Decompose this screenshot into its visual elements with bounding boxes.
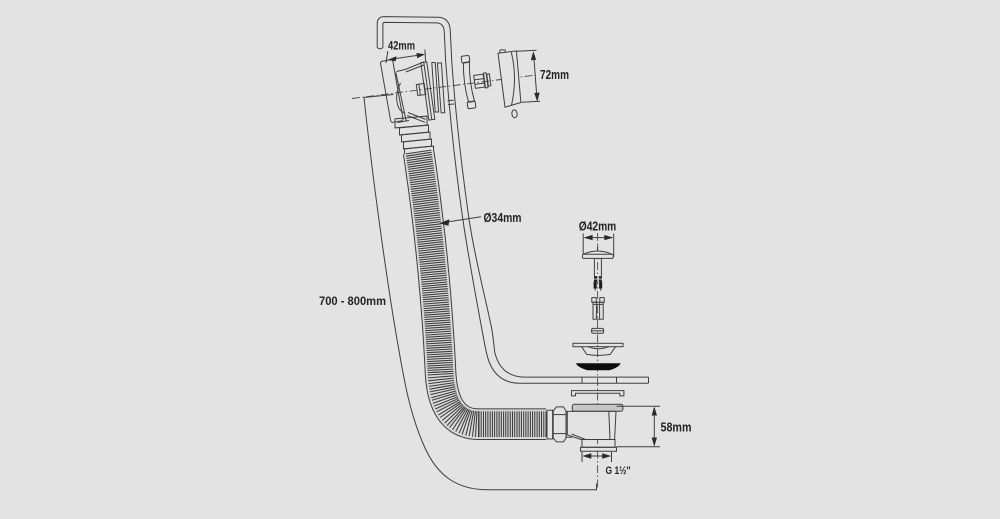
svg-text:700 - 800mm: 700 - 800mm xyxy=(319,294,386,308)
svg-text:G 1½″: G 1½″ xyxy=(606,465,631,477)
svg-text:Ø34mm: Ø34mm xyxy=(484,211,522,225)
svg-text:42mm: 42mm xyxy=(388,38,415,52)
svg-text:Ø42mm: Ø42mm xyxy=(579,220,617,234)
svg-text:58mm: 58mm xyxy=(661,421,692,435)
svg-text:72mm: 72mm xyxy=(540,68,569,82)
